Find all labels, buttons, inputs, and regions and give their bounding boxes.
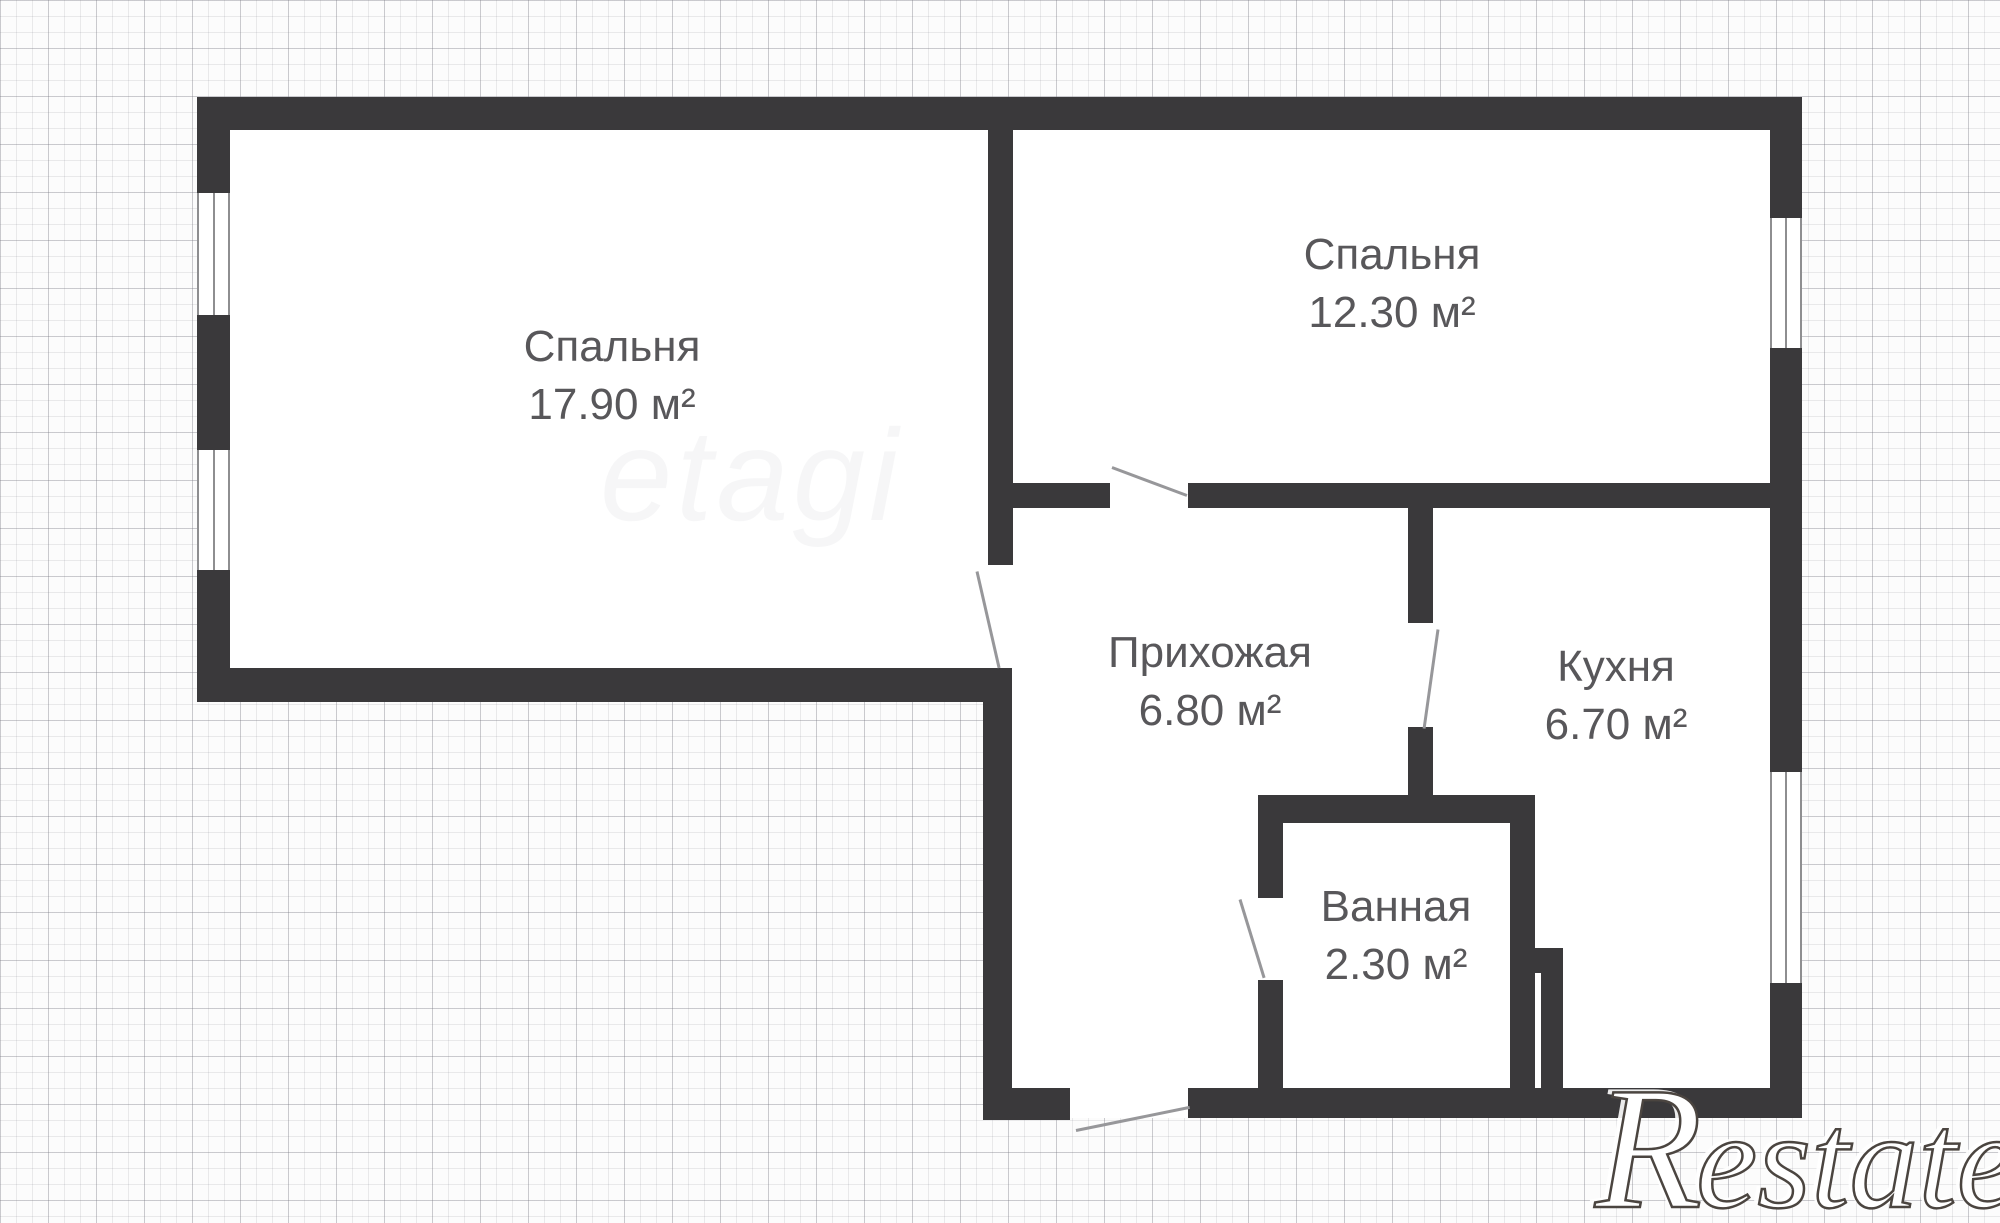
window-mullion	[1785, 218, 1787, 348]
wall-bottom-left-of-entrance	[1012, 1088, 1070, 1120]
watermark-etagi: etagi	[600, 400, 980, 550]
wall-bathroom-right	[1510, 823, 1535, 1088]
wall-right-middle	[1770, 348, 1802, 772]
room-name: Прихожая	[1108, 624, 1312, 682]
wall-bathroom-left-lower	[1258, 980, 1283, 1090]
room-name: Спальня	[524, 318, 701, 376]
room-name: Спальня	[1304, 226, 1481, 284]
wall-kitchen-divider-lower	[1408, 727, 1433, 800]
wall-right-upper	[1770, 97, 1802, 218]
window-mullion	[1785, 772, 1787, 983]
watermark-restate-initial: R	[1595, 1051, 1696, 1223]
wall-bedroom1-bottom	[197, 668, 1012, 702]
wall-bedroom2-south-right	[1188, 483, 1802, 508]
room-label-bedroom-2: Спальня 12.30 м²	[1304, 226, 1481, 342]
wall-left-pier	[197, 315, 230, 450]
room-area: 6.70 м²	[1545, 696, 1688, 754]
window-kitchen	[1770, 772, 1802, 983]
window-bedroom2	[1770, 218, 1802, 348]
wall-bedroom2-south-left	[988, 483, 1110, 508]
room-label-kitchen: Кухня 6.70 м²	[1545, 638, 1688, 754]
window-bedroom1-upper	[197, 193, 230, 315]
floor-plan: Спальня 17.90 м² Спальня 12.30 м² Прихож…	[0, 0, 2000, 1223]
watermark-restate-rest: estate	[1696, 1084, 2000, 1223]
watermark-restate: Restate	[1595, 1048, 2000, 1223]
room-label-bathroom: Ванная 2.30 м²	[1321, 878, 1472, 994]
room-area: 12.30 м²	[1304, 284, 1481, 342]
wall-bathroom-top	[1258, 795, 1535, 823]
room-area: 6.80 м²	[1108, 682, 1312, 740]
wall-hallway-left	[983, 668, 1012, 1120]
room-name: Ванная	[1321, 878, 1472, 936]
room-label-hallway: Прихожая 6.80 м²	[1108, 624, 1312, 740]
room-area: 2.30 м²	[1321, 936, 1472, 994]
room-name: Кухня	[1545, 638, 1688, 696]
wall-top	[197, 97, 1802, 130]
wall-bathroom-left-upper	[1258, 823, 1283, 898]
window-mullion	[213, 193, 215, 315]
window-mullion	[213, 450, 215, 570]
wall-kitchen-divider-upper	[1408, 508, 1433, 623]
wall-duct-stub	[1533, 948, 1563, 973]
window-bedroom1-lower	[197, 450, 230, 570]
wall-duct-vertical	[1541, 973, 1563, 1090]
wall-left-upper	[197, 97, 230, 193]
